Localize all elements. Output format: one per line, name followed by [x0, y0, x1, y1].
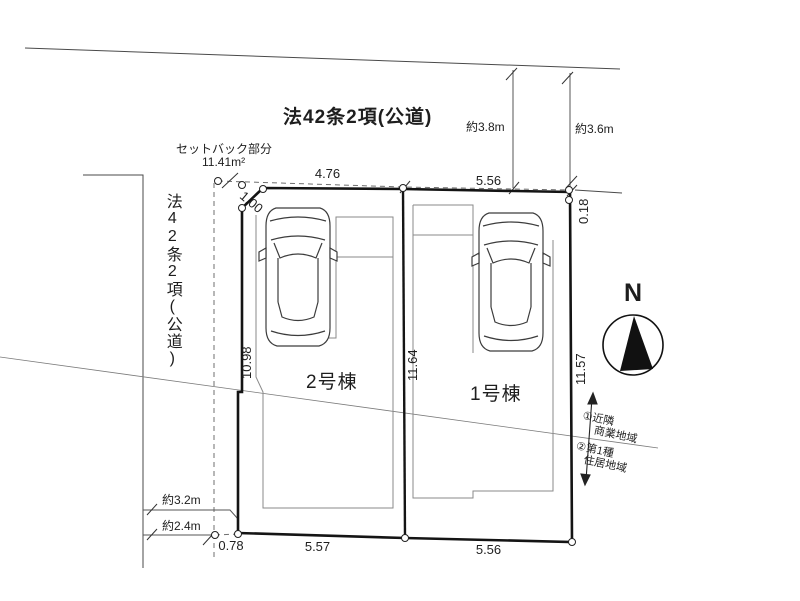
road-top-label: 法42条2項(公道)	[283, 108, 432, 128]
dim-left-depth: 10.98	[240, 346, 254, 379]
dim-top-left: 4.76	[305, 167, 350, 181]
dim-corner-offset: 0.18	[577, 199, 591, 224]
dim-bottom-offset: 0.78	[214, 539, 248, 553]
car-icon	[259, 208, 337, 346]
dim-right-depth: 11.57	[574, 353, 588, 385]
building-2-label: 2号棟	[306, 373, 358, 393]
dim-bottom-right: 5.56	[466, 543, 511, 557]
car-icon	[472, 213, 550, 351]
building-1-label: 1号棟	[470, 385, 522, 405]
road-width-top-left: 約3.8m	[466, 121, 505, 134]
dim-center-depth: 11.64	[406, 349, 420, 381]
setback-area-value: 11.41m²	[202, 156, 245, 169]
road-width-left-lower: 約2.4m	[162, 520, 201, 533]
road-width-top-right: 約3.6m	[575, 123, 614, 136]
compass-icon	[603, 315, 663, 375]
road-left-label: 法42条2項(公道)	[163, 193, 180, 368]
site-plan: 法42条2項(公道) 法42条2項(公道) セットバック部分 11.41m² 4…	[0, 0, 800, 601]
site-plan-drawing	[0, 0, 800, 601]
zoning-labels: ①近隣 商業地域 ②第1種 住居地域	[573, 410, 641, 476]
dim-top-right: 5.56	[466, 174, 511, 188]
zoning-boundary-line	[0, 357, 658, 448]
setback-label: セットバック部分	[176, 143, 272, 156]
road-width-left-upper: 約3.2m	[162, 494, 201, 507]
dim-bottom-left: 5.57	[295, 540, 340, 554]
compass-north-label: N	[613, 280, 653, 306]
